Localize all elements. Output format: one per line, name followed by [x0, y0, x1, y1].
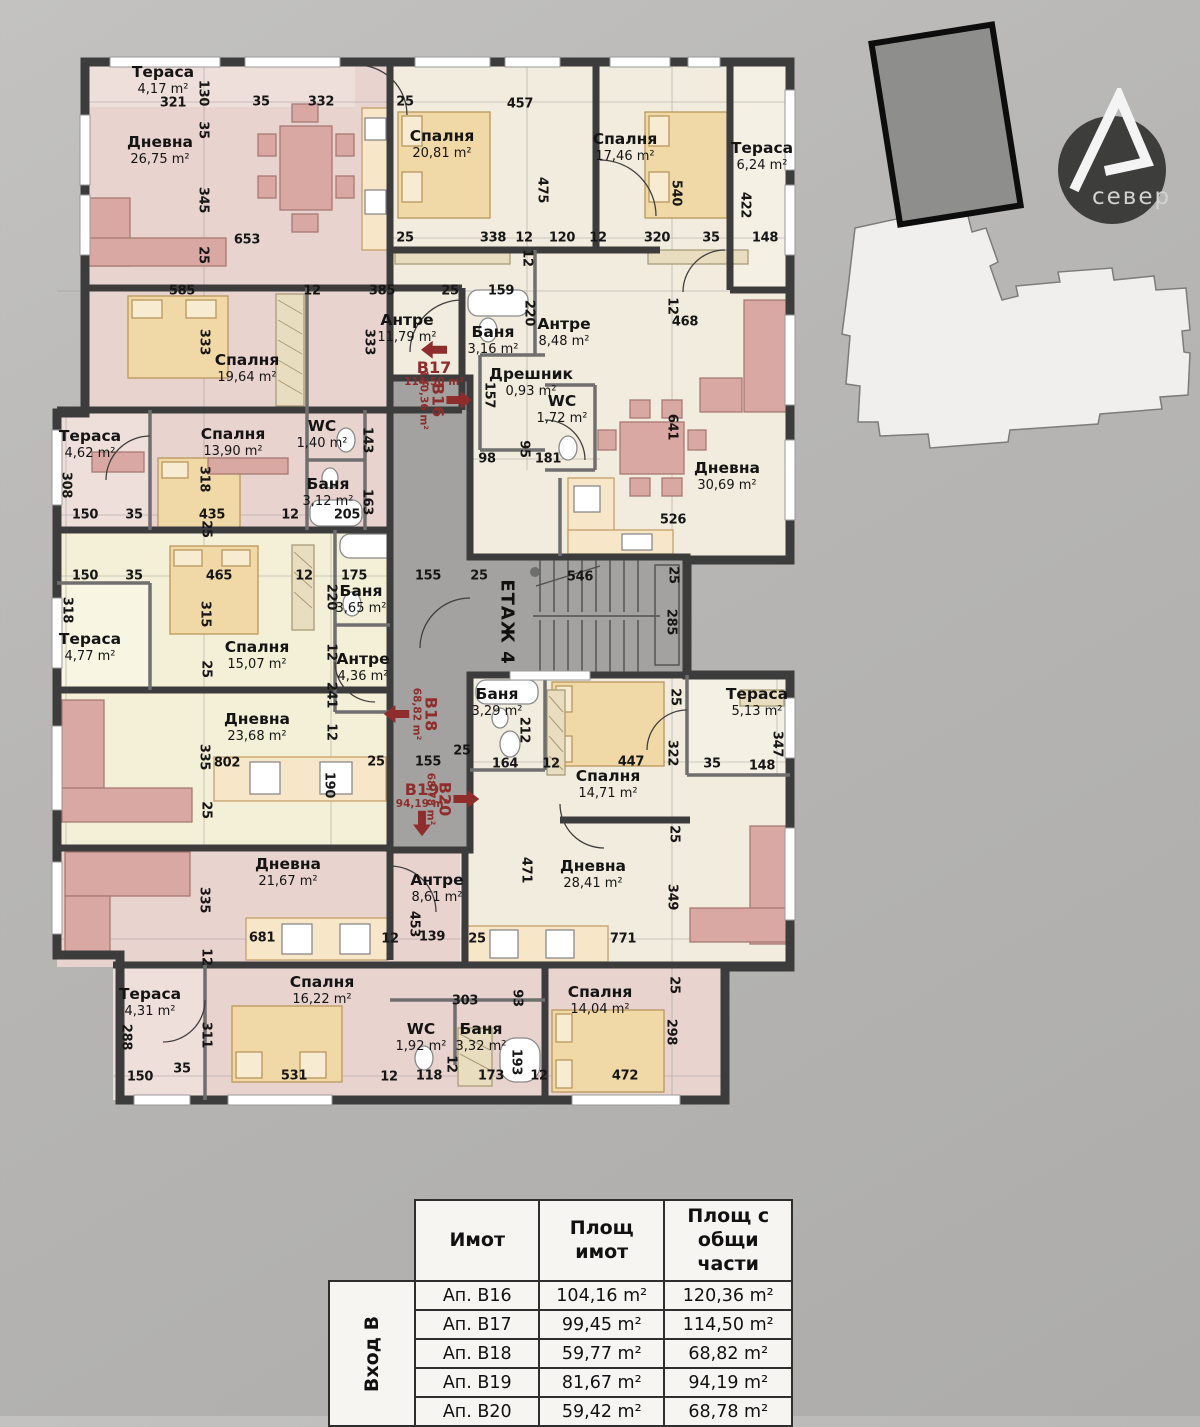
- entrance-group-label: Вход В: [361, 1316, 383, 1392]
- room-name: WC: [396, 1020, 447, 1039]
- dimension-label: 333: [362, 329, 377, 355]
- room-label: Дневна26,75 m²: [127, 133, 193, 167]
- room-area: 4,36 m²: [336, 669, 389, 685]
- room-name: Тераса: [119, 985, 181, 1004]
- dimension-label: 288: [119, 1024, 134, 1050]
- room-name: Спалня: [593, 130, 658, 149]
- dimension-label: 143: [360, 427, 375, 453]
- room-label: Тераса4,62 m²: [59, 427, 121, 461]
- table-row: Вход ВАп. В16104,16 m²120,36 m²: [329, 1281, 792, 1310]
- unit-cell: Ап. В20: [415, 1397, 539, 1426]
- room-label: Баня3,29 m²: [472, 685, 523, 719]
- room-area: 1,72 m²: [537, 411, 588, 427]
- dimension-label: 347: [770, 731, 785, 757]
- room-label: Дневна21,67 m²: [255, 855, 321, 889]
- room-label: Спалня16,22 m²: [290, 973, 355, 1007]
- room-name: Дневна: [224, 710, 290, 729]
- dimension-label: 25: [667, 825, 682, 843]
- apartment-entrance-arrow-icon: [384, 705, 410, 723]
- area-common-cell: 120,36 m²: [664, 1281, 792, 1310]
- dimension-label: 25: [199, 801, 214, 819]
- dimension-label: 25: [470, 569, 488, 584]
- dimension-label: 315: [198, 601, 213, 627]
- dimension-label: 802: [214, 756, 240, 771]
- dimension-label: 385: [369, 284, 395, 299]
- dimension-label: 681: [249, 931, 275, 946]
- room-name: Тераса: [59, 427, 121, 446]
- dimension-label: 349: [665, 884, 680, 910]
- room-area: 4,31 m²: [119, 1004, 181, 1020]
- room-area: 20,81 m²: [410, 146, 475, 162]
- room-area: 8,48 m²: [537, 334, 590, 350]
- dimension-label: 585: [169, 284, 195, 299]
- dimension-label: 150: [72, 569, 98, 584]
- room-name: WC: [537, 392, 588, 411]
- dimension-label: 164: [492, 757, 518, 772]
- dimension-label: 173: [478, 1069, 504, 1084]
- dimension-label: 35: [173, 1062, 191, 1077]
- room-area: 3,12 m²: [303, 494, 354, 510]
- apartment-total-area: 68,82 m²: [411, 688, 422, 740]
- dimension-label: 25: [453, 744, 471, 759]
- room-area: 21,67 m²: [255, 874, 321, 890]
- unit-cell: Ап. В19: [415, 1368, 539, 1397]
- room-label: Спалня17,46 m²: [593, 130, 658, 164]
- dimension-label: 540: [669, 180, 684, 206]
- key-plan-current-section: [872, 25, 1021, 225]
- room-label: Спалня15,07 m²: [225, 638, 290, 672]
- room-area: 17,46 m²: [593, 149, 658, 165]
- room-area: 30,69 m²: [694, 478, 760, 494]
- table-header-spacer: [329, 1200, 415, 1281]
- dimension-label: 25: [199, 660, 214, 678]
- room-name: Спалня: [215, 351, 280, 370]
- dimension-label: 12: [303, 284, 321, 299]
- room-label: Дневна23,68 m²: [224, 710, 290, 744]
- dimension-label: 25: [666, 566, 681, 584]
- dimension-label: 35: [702, 231, 720, 246]
- floor-number-label: ЕТАЖ 4: [497, 579, 518, 664]
- room-label: Тераса4,31 m²: [119, 985, 181, 1019]
- dimension-label: 150: [72, 508, 98, 523]
- apartment-entrance-arrow-icon: [453, 790, 479, 808]
- dimension-label: 12: [444, 1055, 459, 1073]
- table-header-area-common: Площ с общи части: [664, 1200, 792, 1281]
- dimension-label: 148: [752, 231, 778, 246]
- dimension-label: 318: [60, 597, 75, 623]
- dimension-label: 12: [530, 1069, 548, 1084]
- room-name: Дневна: [255, 855, 321, 874]
- room-area: 28,41 m²: [560, 876, 626, 892]
- room-area: 13,90 m²: [201, 444, 266, 460]
- dimension-label: 25: [196, 246, 211, 264]
- room-name: Антре: [410, 871, 463, 890]
- room-label: Тераса4,77 m²: [59, 630, 121, 664]
- dimension-label: 118: [416, 1069, 442, 1084]
- dimension-label: 546: [567, 570, 593, 585]
- room-label: Баня3,12 m²: [303, 475, 354, 509]
- table-header-unit: Имот: [415, 1200, 539, 1281]
- room-name: Дневна: [127, 133, 193, 152]
- room-label: Дневна28,41 m²: [560, 857, 626, 891]
- dimension-label: 531: [281, 1069, 307, 1084]
- dimension-label: 93: [510, 989, 525, 1007]
- dimension-label: 335: [197, 887, 212, 913]
- room-name: Антре: [377, 311, 436, 330]
- apartment-id: В16: [429, 383, 445, 417]
- page-background: ЕТАЖ 4 Тераса4,17 m²Дневна26,75 m²Спалня…: [0, 0, 1200, 1416]
- table-header-row: Имот Площ имот Площ с общи части: [329, 1200, 792, 1281]
- apartment-total-area: 120,36 m²: [418, 370, 429, 430]
- dimension-label: 35: [125, 508, 143, 523]
- unit-cell: Ап. В18: [415, 1339, 539, 1368]
- company-logo: север: [1052, 88, 1182, 228]
- area-common-cell: 68,82 m²: [664, 1339, 792, 1368]
- room-area: 1,40 m²: [297, 436, 348, 452]
- dimension-label: 338: [480, 231, 506, 246]
- dimension-label: 311: [199, 1022, 214, 1048]
- dimension-label: 12: [381, 932, 399, 947]
- room-label: Антре8,61 m²: [410, 871, 463, 905]
- dimension-label: 308: [59, 472, 74, 498]
- room-name: Антре: [336, 650, 389, 669]
- entrance-group-cell: Вход В: [329, 1281, 415, 1426]
- dimension-label: 12: [380, 1070, 398, 1085]
- dimension-label: 12: [589, 231, 607, 246]
- room-label: Дневна30,69 m²: [694, 459, 760, 493]
- room-label: Баня3,65 m²: [336, 582, 387, 616]
- dimension-label: 465: [206, 569, 232, 584]
- area-common-cell: 94,19 m²: [664, 1368, 792, 1397]
- room-area: 4,17 m²: [132, 82, 194, 98]
- dimension-label: 468: [672, 315, 698, 330]
- room-area: 6,24 m²: [731, 158, 793, 174]
- dimension-label: 332: [308, 95, 334, 110]
- room-name: Спалня: [290, 973, 355, 992]
- dimension-label: 25: [396, 231, 414, 246]
- dimension-label: 322: [665, 740, 680, 766]
- room-label: Спалня13,90 m²: [201, 425, 266, 459]
- room-name: Баня: [303, 475, 354, 494]
- room-label: Спалня14,04 m²: [568, 983, 633, 1017]
- room-label: Спалня20,81 m²: [410, 127, 475, 161]
- dimension-label: 457: [507, 97, 533, 112]
- room-label: Баня3,16 m²: [468, 323, 519, 357]
- dimension-label: 12: [665, 297, 680, 315]
- apartment-marker: В16120,36 m²: [418, 370, 473, 430]
- room-label: WC1,72 m²: [537, 392, 588, 426]
- area-common-cell: 114,50 m²: [664, 1310, 792, 1339]
- room-name: Дневна: [694, 459, 760, 478]
- room-area: 15,07 m²: [225, 657, 290, 673]
- room-name: Дрешник: [489, 365, 573, 384]
- room-area: 16,22 m²: [290, 992, 355, 1008]
- area-cell: 81,67 m²: [539, 1368, 664, 1397]
- apartment-marker: В2068,78 m²: [425, 773, 480, 825]
- dimension-label: 12: [324, 723, 339, 741]
- dimension-label: 526: [660, 513, 686, 528]
- room-name: Спалня: [201, 425, 266, 444]
- apartment-total-area: 68,78 m²: [425, 773, 436, 825]
- dimension-label: 471: [519, 857, 534, 883]
- room-area: 4,62 m²: [59, 446, 121, 462]
- dimension-label: 95: [517, 440, 532, 458]
- room-area: 23,68 m²: [224, 729, 290, 745]
- room-name: Спалня: [225, 638, 290, 657]
- dimension-label: 335: [197, 744, 212, 770]
- room-name: Антре: [537, 315, 590, 334]
- area-cell: 99,45 m²: [539, 1310, 664, 1339]
- stair-start-dot: [530, 567, 540, 577]
- dimension-label: 212: [517, 717, 532, 743]
- dimension-label: 190: [322, 772, 337, 798]
- room-name: Баня: [336, 582, 387, 601]
- room-name: Тераса: [726, 685, 788, 704]
- dimension-label: 35: [196, 121, 211, 139]
- room-label: Антре4,36 m²: [336, 650, 389, 684]
- dimension-label: 98: [478, 452, 496, 467]
- dimension-label: 35: [252, 95, 270, 110]
- room-label: Антре8,48 m²: [537, 315, 590, 349]
- room-label: Тераса6,24 m²: [731, 139, 793, 173]
- dimension-label: 12: [281, 508, 299, 523]
- room-name: Баня: [456, 1020, 507, 1039]
- dimension-label: 25: [668, 688, 683, 706]
- room-area: 14,71 m²: [576, 786, 641, 802]
- room-name: Спалня: [568, 983, 633, 1002]
- dimension-label: 25: [367, 755, 385, 770]
- dimension-label: 321: [160, 96, 186, 111]
- apartment-entrance-arrow-icon: [446, 391, 472, 409]
- room-area: 19,64 m²: [215, 370, 280, 386]
- room-label: Тераса5,13 m²: [726, 685, 788, 719]
- room-area: 26,75 m²: [127, 152, 193, 168]
- room-label: WC1,92 m²: [396, 1020, 447, 1054]
- dimension-label: 25: [441, 284, 459, 299]
- dimension-label: 155: [415, 569, 441, 584]
- dimension-label: 12: [515, 231, 533, 246]
- area-cell: 104,16 m²: [539, 1281, 664, 1310]
- dimension-label: 120: [549, 231, 575, 246]
- dimension-label: 159: [488, 284, 514, 299]
- room-label: Спалня19,64 m²: [215, 351, 280, 385]
- room-label: Тераса4,17 m²: [132, 63, 194, 97]
- room-area: 3,16 m²: [468, 342, 519, 358]
- room-area: 1,92 m²: [396, 1039, 447, 1055]
- dimension-label: 422: [738, 192, 753, 218]
- dimension-label: 25: [468, 932, 486, 947]
- dimension-label: 148: [749, 759, 775, 774]
- dimension-label: 298: [664, 1019, 679, 1045]
- room-area: 5,13 m²: [726, 704, 788, 720]
- dimension-label: 12: [542, 757, 560, 772]
- dimension-label: 12: [199, 948, 214, 966]
- dimension-label: 320: [644, 231, 670, 246]
- room-name: Баня: [472, 685, 523, 704]
- room-name: Тераса: [132, 63, 194, 82]
- dimension-label: 155: [415, 755, 441, 770]
- dimension-label: 139: [419, 930, 445, 945]
- dimension-label: 25: [667, 976, 682, 994]
- room-name: Тераса: [731, 139, 793, 158]
- dimension-label: 193: [509, 1049, 524, 1075]
- room-label: Спалня14,71 m²: [576, 767, 641, 801]
- dimension-label: 181: [535, 452, 561, 467]
- dimension-label: 241: [324, 682, 339, 708]
- apartment-entrance-arrow-icon: [421, 341, 447, 359]
- room-name: Тераса: [59, 630, 121, 649]
- room-name: Спалня: [576, 767, 641, 786]
- dimension-label: 130: [196, 80, 211, 106]
- apartment-marker: В1868,82 m²: [384, 688, 439, 740]
- dimension-label: 12: [295, 569, 313, 584]
- room-area: 3,65 m²: [336, 601, 387, 617]
- dimension-label: 285: [664, 609, 679, 635]
- room-label: WC1,40 m²: [297, 417, 348, 451]
- dimension-label: 35: [125, 569, 143, 584]
- room-area: 3,29 m²: [472, 704, 523, 720]
- dimension-label: 475: [535, 177, 550, 203]
- area-common-cell: 68,78 m²: [664, 1397, 792, 1426]
- room-area: 4,77 m²: [59, 649, 121, 665]
- room-name: Спалня: [410, 127, 475, 146]
- dimension-label: 163: [360, 489, 375, 515]
- room-area: 14,04 m²: [568, 1002, 633, 1018]
- room-name: Дневна: [560, 857, 626, 876]
- dimension-label: 12: [520, 249, 535, 267]
- room-label: Баня3,32 m²: [456, 1020, 507, 1054]
- room-area: 3,32 m²: [456, 1039, 507, 1055]
- dimension-label: 641: [665, 414, 680, 440]
- room-name: WC: [297, 417, 348, 436]
- apartment-id: В18: [422, 697, 438, 731]
- dimension-label: 472: [612, 1069, 638, 1084]
- key-plan-building-outline: [842, 204, 1190, 448]
- unit-cell: Ап. В16: [415, 1281, 539, 1310]
- dimension-label: 220: [522, 300, 537, 326]
- room-area: 8,61 m²: [410, 890, 463, 906]
- area-cell: 59,77 m²: [539, 1339, 664, 1368]
- dimension-label: 25: [199, 520, 214, 538]
- unit-cell: Ап. В17: [415, 1310, 539, 1339]
- dimension-label: 150: [127, 1070, 153, 1085]
- logo-text: север: [1092, 184, 1171, 210]
- dimension-label: 333: [197, 329, 212, 355]
- table-header-area: Площ имот: [539, 1200, 664, 1281]
- dimension-label: 345: [196, 187, 211, 213]
- dimension-label: 318: [197, 466, 212, 492]
- room-name: Баня: [468, 323, 519, 342]
- dimension-label: 35: [703, 757, 721, 772]
- dimension-label: 771: [610, 932, 636, 947]
- apartment-id: В20: [436, 782, 452, 816]
- area-cell: 59,42 m²: [539, 1397, 664, 1426]
- dimension-label: 653: [234, 233, 260, 248]
- dimension-label: 303: [452, 994, 478, 1009]
- dimension-label: 205: [334, 508, 360, 523]
- dimension-label: 25: [396, 95, 414, 110]
- area-table: Имот Площ имот Площ с общи части Вход ВА…: [328, 1199, 793, 1427]
